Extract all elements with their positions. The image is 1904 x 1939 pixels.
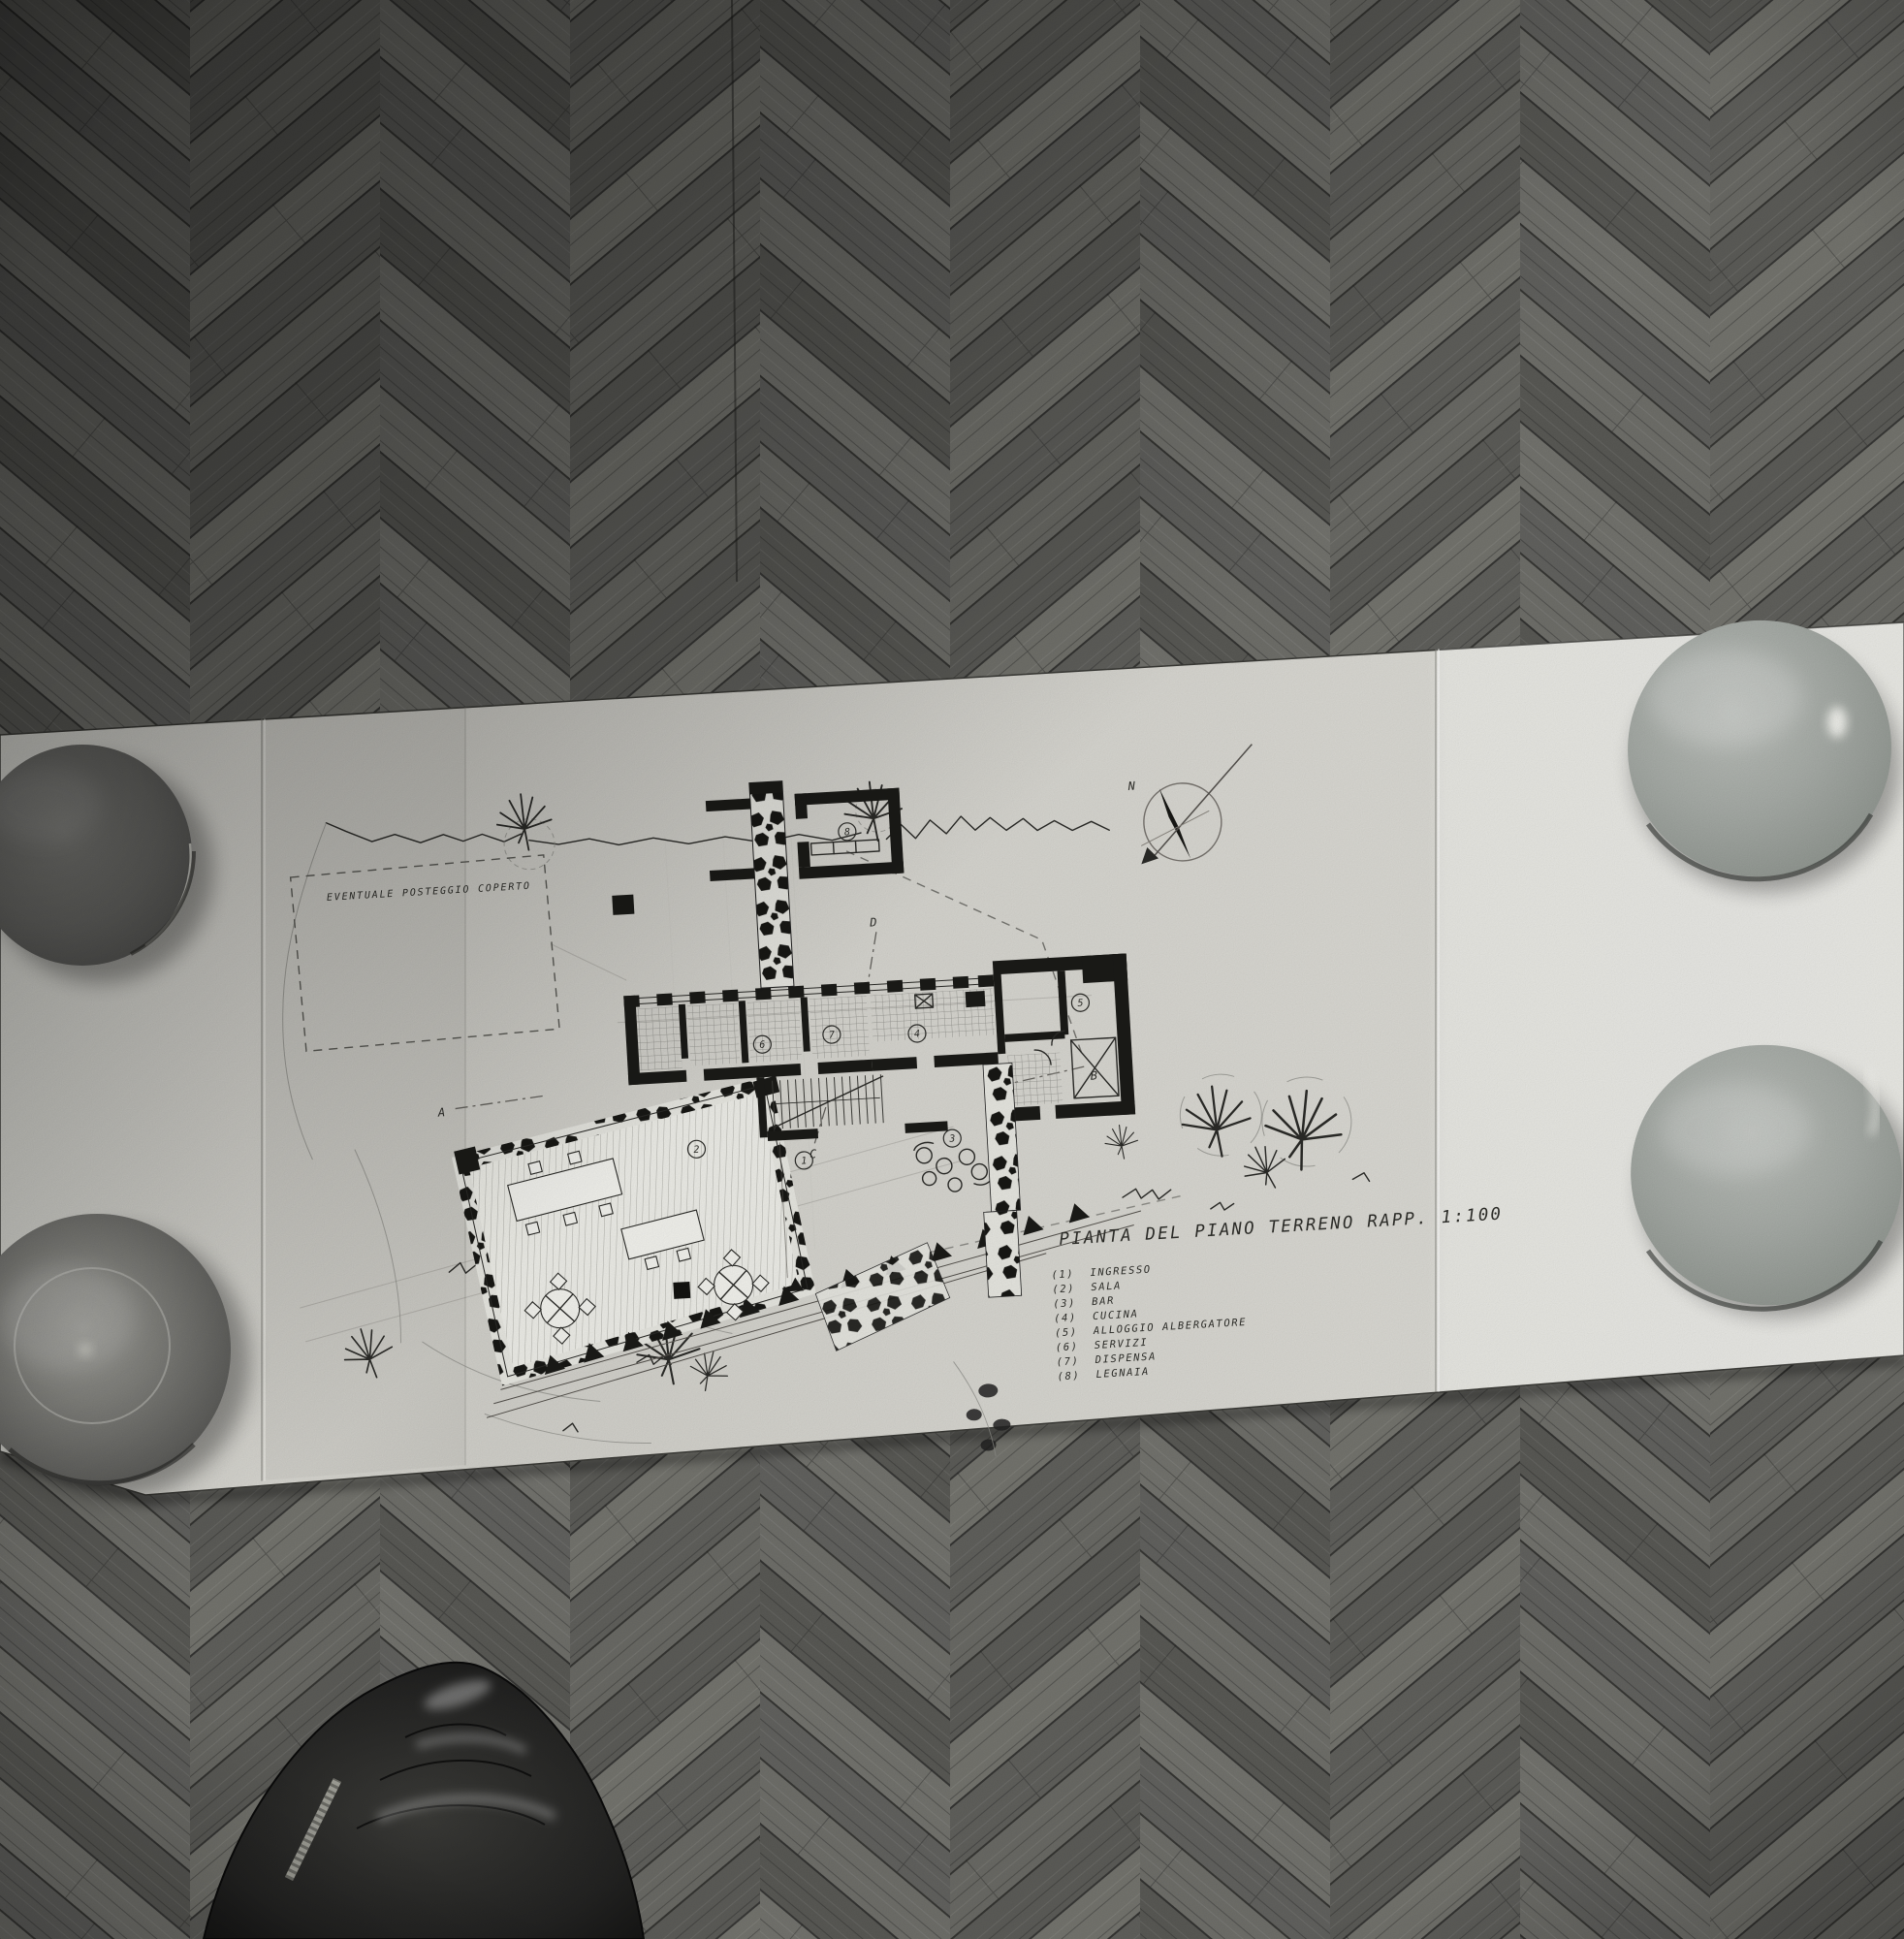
film-grain (0, 0, 1904, 1939)
photograph: EVENTUALE POSTEGGIO COPERTO N A B C D (0, 0, 1904, 1939)
